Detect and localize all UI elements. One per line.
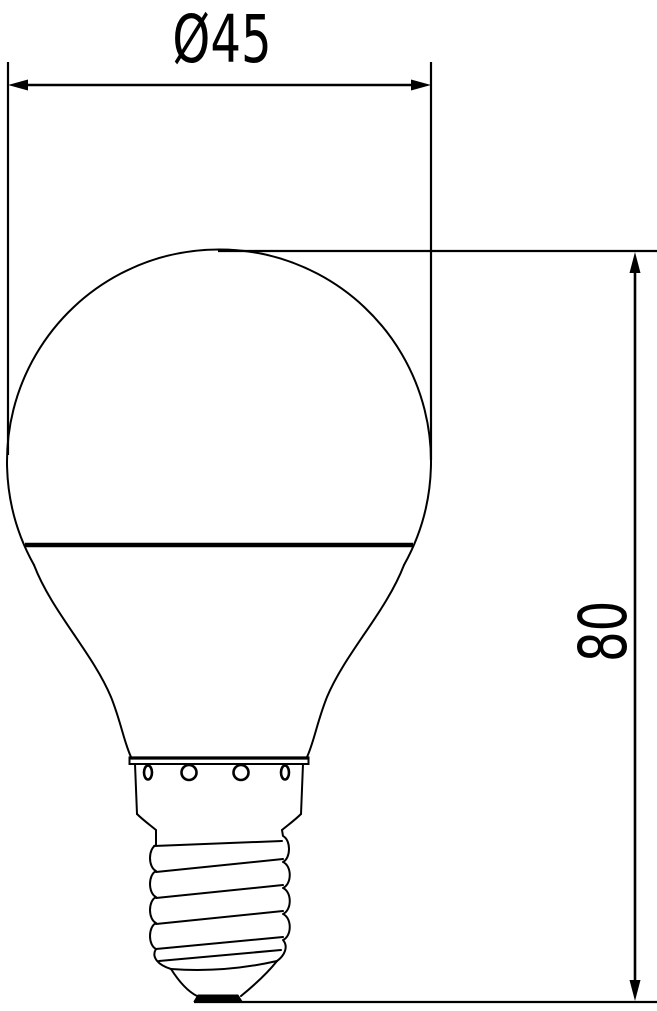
neck-left-outline: [34, 565, 131, 757]
height-label: 80: [564, 601, 642, 662]
insulator-left-taper: [171, 969, 197, 996]
screw-bottom-curve: [171, 961, 277, 970]
collar-right-side: [301, 764, 303, 814]
thread-line-1: [154, 841, 282, 846]
thread-bottom-line: [159, 950, 281, 961]
collar-left-chamfer: [137, 814, 156, 830]
technical-drawing-canvas: Ø45 80: [0, 0, 657, 1011]
screw-right-edge: [277, 830, 290, 961]
thread-line-5: [156, 937, 283, 949]
dimension-height: 80: [194, 251, 657, 1002]
bulb-dimension-drawing: Ø45 80: [0, 0, 657, 1011]
arrowhead-up-icon: [630, 252, 641, 273]
collar-hole-1: [144, 766, 152, 780]
collar-right-chamfer: [282, 814, 301, 830]
collar-hole-4: [281, 766, 289, 780]
arrowhead-down-icon: [630, 980, 641, 1001]
neck-right-outline: [307, 565, 404, 757]
collar-hole-2: [182, 765, 197, 780]
diameter-label: Ø45: [172, 0, 271, 78]
arrowhead-right-icon: [411, 80, 431, 91]
globe-outline: [7, 249, 431, 565]
thread-line-3: [156, 885, 283, 898]
collar-left-side: [135, 764, 137, 814]
arrowhead-left-icon: [8, 80, 28, 91]
thread-line-4: [156, 911, 283, 924]
dimension-diameter: Ø45: [8, 0, 431, 460]
bulb-outline: [7, 249, 431, 1001]
collar-hole-3: [234, 765, 249, 780]
foot-contact: [194, 995, 242, 1002]
thread-line-2: [156, 859, 283, 872]
